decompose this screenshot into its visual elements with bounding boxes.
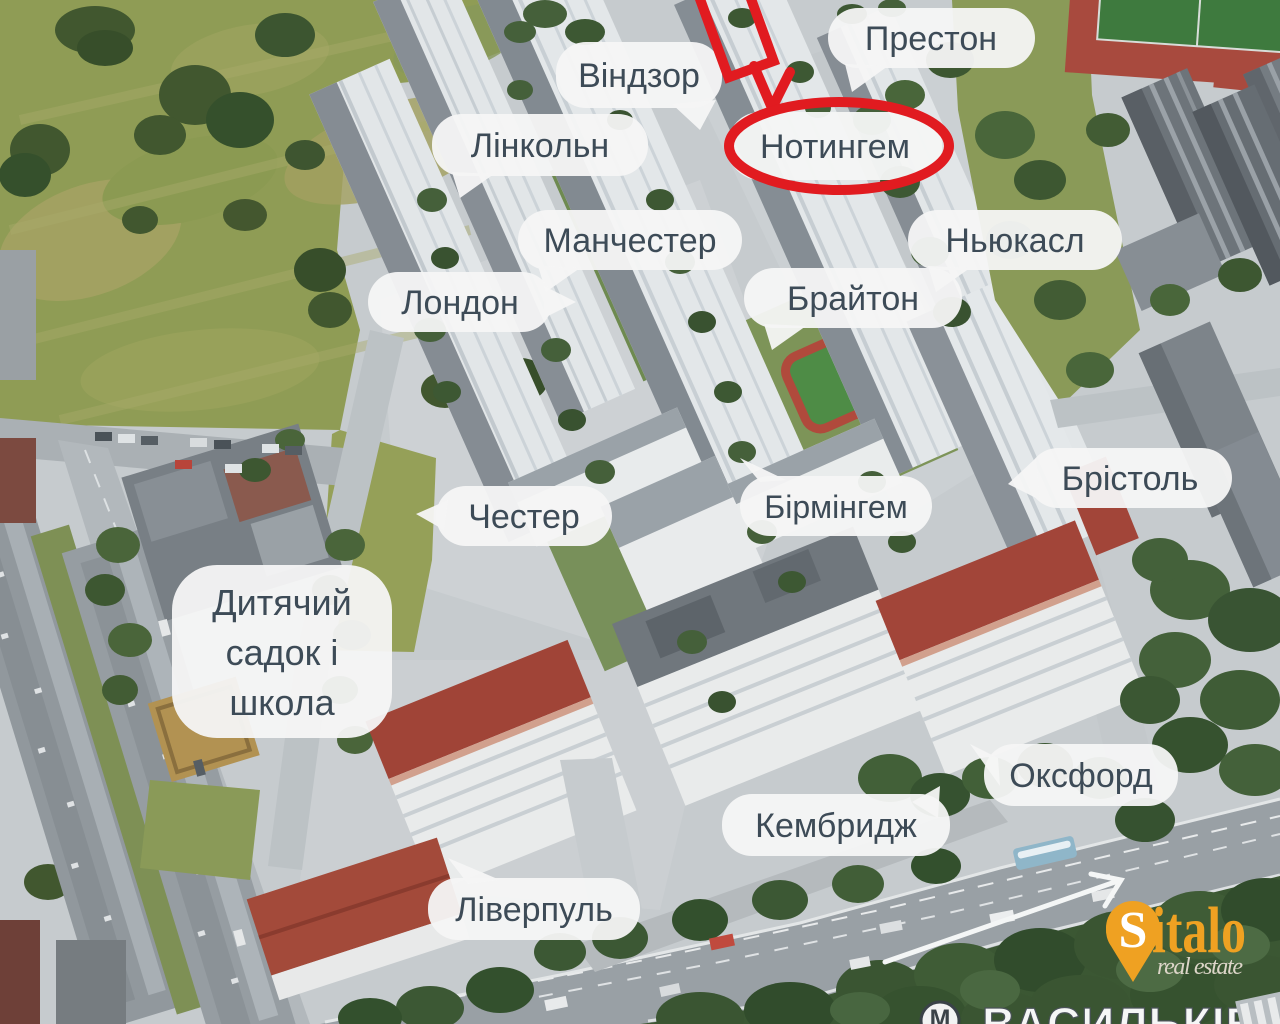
svg-text:Віндзор: Віндзор [578, 57, 700, 95]
svg-text:М: М [930, 1005, 951, 1024]
svg-text:Нотингем: Нотингем [760, 128, 910, 166]
svg-text:Бірмінгем: Бірмінгем [764, 489, 907, 525]
svg-text:Манчестер: Манчестер [543, 222, 716, 260]
svg-text:садок і: садок і [226, 632, 339, 673]
svg-text:Оксфорд: Оксфорд [1009, 757, 1153, 795]
svg-text:S: S [1119, 902, 1148, 959]
svg-text:Престон: Престон [865, 20, 997, 58]
svg-text:Ліверпуль: Ліверпуль [455, 891, 613, 929]
svg-text:школа: школа [229, 682, 335, 723]
svg-text:Честер: Честер [468, 498, 580, 536]
svg-text:real estate: real estate [1157, 954, 1243, 980]
svg-text:Брістоль: Брістоль [1062, 460, 1199, 498]
svg-text:Ньюкасл: Ньюкасл [945, 222, 1084, 260]
svg-text:ВАСИЛЬКІВСЬКА: ВАСИЛЬКІВСЬКА [982, 998, 1280, 1024]
svg-text:Дитячий: Дитячий [212, 582, 351, 623]
svg-text:Лінкольн: Лінкольн [471, 127, 609, 165]
svg-text:Кембридж: Кембридж [755, 807, 917, 845]
svg-text:Лондон: Лондон [401, 284, 519, 322]
svg-text:Брайтон: Брайтон [787, 280, 919, 318]
